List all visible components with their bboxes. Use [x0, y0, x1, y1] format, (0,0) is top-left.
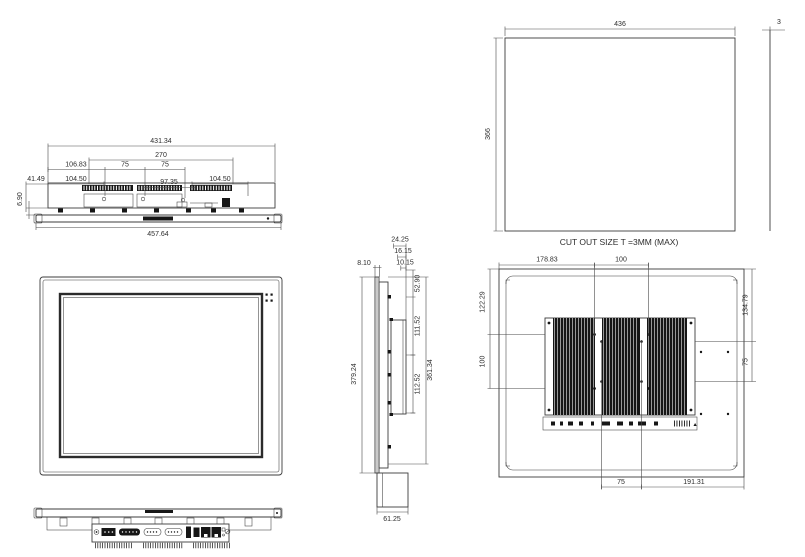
dim-cutout-height: 366	[485, 128, 492, 140]
dim-rear-offset-top-right: 134.79	[743, 294, 750, 316]
top-view-front-bezel	[34, 214, 282, 223]
dim-top-mount-span: 270	[155, 152, 167, 159]
usb-port	[194, 528, 200, 538]
usb-port-stack	[186, 527, 191, 539]
cutout-rectangle	[505, 38, 735, 231]
dim-top-seg-mid: 97.35	[160, 179, 178, 186]
panel-cutout-view: 436 366 3 CUT OUT SIZE T =3MM (MAX)	[485, 19, 785, 247]
side-view-body	[375, 248, 408, 507]
side-view-dimensions: 24.25 16.15 10.15 8.10 379.24 52.90 111.…	[351, 237, 434, 524]
dim-side-inner-height: 361.34	[427, 359, 434, 381]
front-bezel-inner	[43, 280, 279, 472]
bottom-bezel-edge	[34, 508, 282, 518]
front-view	[40, 277, 282, 475]
dim-side-depth-c: 10.15	[396, 260, 414, 267]
dim-side-seg-mid: 111.52	[415, 316, 422, 336]
dim-top-overall-width: 457.64	[147, 231, 169, 238]
bottom-io-panel	[92, 524, 230, 542]
dim-top-seg-left: 104.50	[65, 176, 87, 183]
dim-rear-vesa75-w: 75	[617, 479, 625, 486]
dim-top-edge-left: 41.49	[27, 176, 45, 183]
dim-cutout-thickness: 3	[777, 19, 781, 26]
dim-rear-vesa100-h: 100	[480, 356, 487, 368]
dim-rear-vesa75-h: 75	[743, 358, 750, 366]
cutout-dimensions: 436 366 3	[485, 19, 785, 231]
dim-side-seg-bottom: 112.52	[415, 373, 422, 394]
dim-top-offset-left: 106.83	[65, 162, 87, 169]
rear-view: 178.83 100 122.29 100 134.79 75 75 191.3…	[480, 257, 757, 490]
dim-side-depth-a: 24.25	[391, 237, 409, 244]
bottom-view	[34, 508, 282, 546]
front-indicator-leds	[266, 294, 273, 302]
cutout-caption: CUT OUT SIZE T =3MM (MAX)	[560, 237, 679, 247]
dim-side-front-thickness: 8.10	[357, 260, 371, 267]
dim-rear-offset-bottom-right: 191.31	[683, 479, 705, 486]
dim-side-overall-height: 379.24	[351, 363, 358, 385]
dim-top-seg-right: 104.50	[209, 176, 231, 183]
dim-side-depth-b: 16.15	[394, 248, 412, 255]
dim-top-body-width: 431.34	[150, 138, 172, 145]
display-active-area	[64, 298, 259, 454]
dim-top-pitch-a: 75	[121, 162, 129, 169]
drawing-canvas: 431.34 270 106.83 75 75 41.49 104.50 97.…	[0, 0, 805, 557]
side-mount-bracket	[377, 473, 408, 507]
rear-heatsink-assembly	[545, 318, 695, 415]
top-view-chassis	[48, 183, 275, 208]
dim-rear-vesa100-w: 100	[615, 257, 627, 264]
dim-rear-offset-left: 178.83	[536, 257, 558, 264]
side-view: 24.25 16.15 10.15 8.10 379.24 52.90 111.…	[351, 237, 434, 524]
technical-drawing-sheet: 431.34 270 106.83 75 75 41.49 104.50 97.…	[0, 0, 805, 557]
display-area	[60, 294, 262, 457]
dim-cutout-width: 436	[614, 21, 626, 28]
top-view-mounting-tabs	[58, 209, 244, 213]
dim-rear-offset-top-left: 122.29	[480, 291, 487, 313]
dim-side-bracket-width: 61.25	[383, 516, 401, 523]
front-bezel-outer	[40, 277, 282, 475]
dim-top-pitch-b: 75	[161, 162, 169, 169]
rear-io-strip	[543, 417, 697, 430]
top-view: 431.34 270 106.83 75 75 41.49 104.50 97.…	[17, 138, 282, 238]
dim-top-lip: 6.90	[17, 192, 24, 206]
